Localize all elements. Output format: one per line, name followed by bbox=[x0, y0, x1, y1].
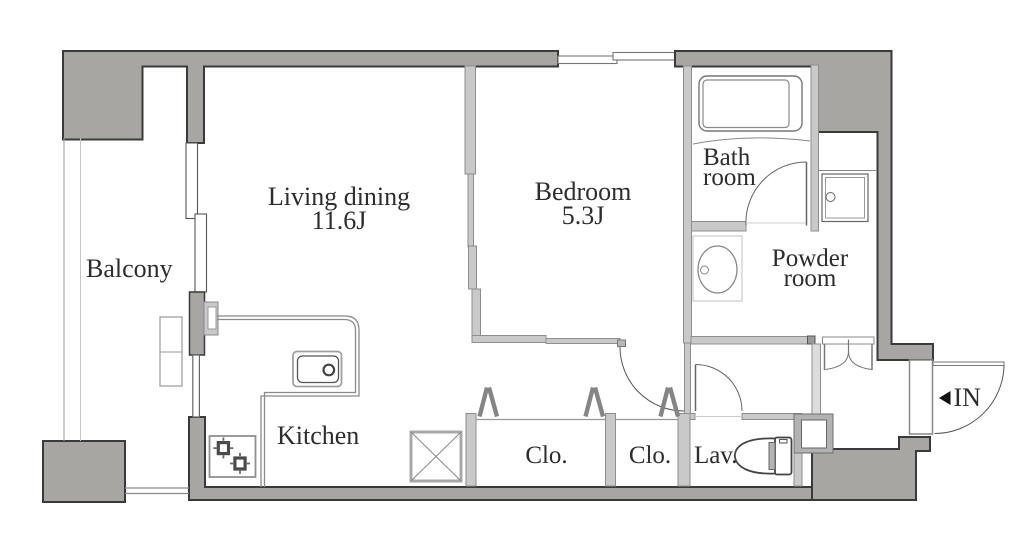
svg-text:Clo.: Clo. bbox=[629, 442, 671, 469]
svg-text:Lav.: Lav. bbox=[694, 442, 738, 469]
svg-text:11.6J: 11.6J bbox=[312, 206, 367, 235]
svg-text:room: room bbox=[784, 265, 837, 292]
svg-text:Balcony: Balcony bbox=[86, 254, 173, 283]
svg-text:IN: IN bbox=[954, 383, 982, 412]
svg-text:5.3J: 5.3J bbox=[562, 201, 605, 230]
svg-text:room: room bbox=[703, 164, 756, 191]
svg-text:Clo.: Clo. bbox=[525, 442, 567, 469]
svg-text:Kitchen: Kitchen bbox=[277, 421, 359, 450]
